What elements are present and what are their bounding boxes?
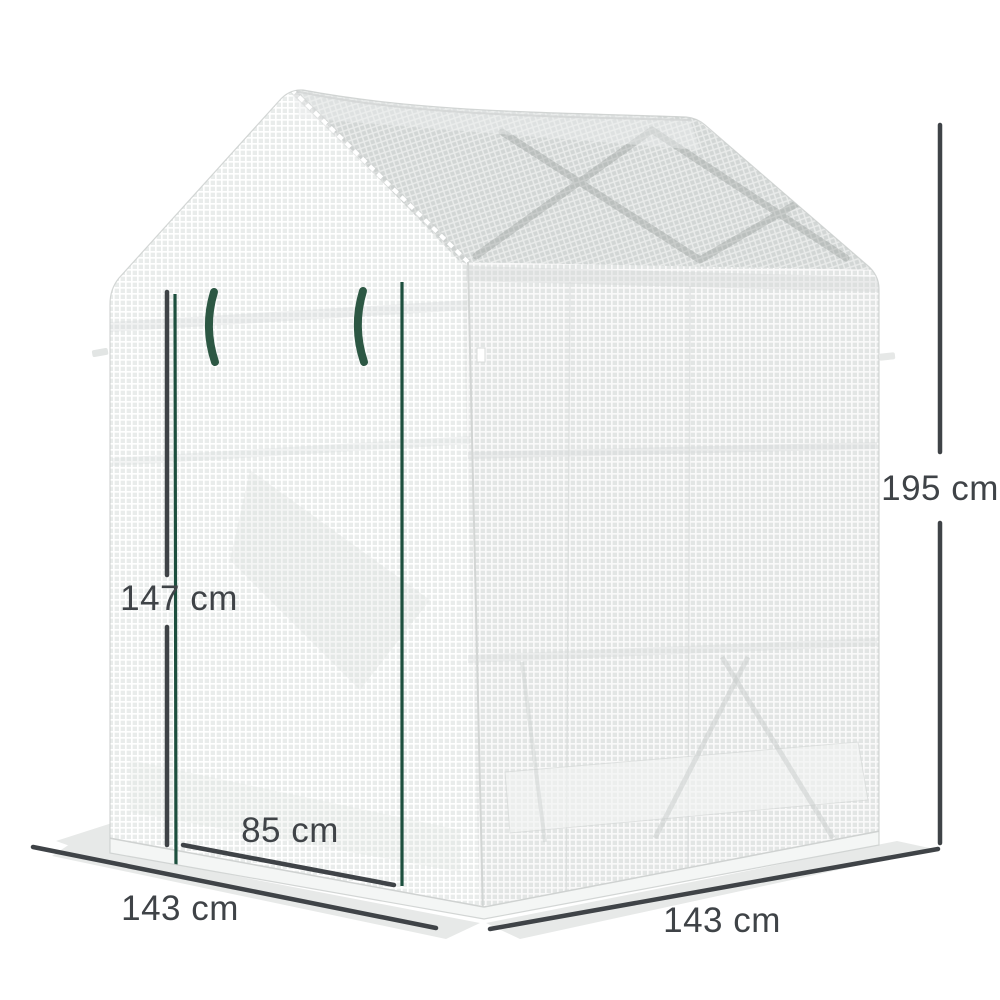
label-overall-height: 195 cm: [881, 469, 999, 508]
label-door-width: 85 cm: [241, 811, 339, 850]
label-door-height: 147 cm: [120, 579, 238, 618]
label-base-left: 143 cm: [121, 889, 239, 928]
corner-tie-tab: [477, 348, 485, 362]
frame-tie-right: [879, 352, 896, 361]
frame-tie-left: [92, 348, 109, 358]
walk-in-greenhouse-illustration: 195 cm 147 cm 85 cm 143 cm 143 cm: [0, 0, 1000, 1000]
label-base-right: 143 cm: [663, 901, 781, 940]
greenhouse-dimension-diagram: 195 cm 147 cm 85 cm 143 cm 143 cm: [0, 0, 1000, 1000]
